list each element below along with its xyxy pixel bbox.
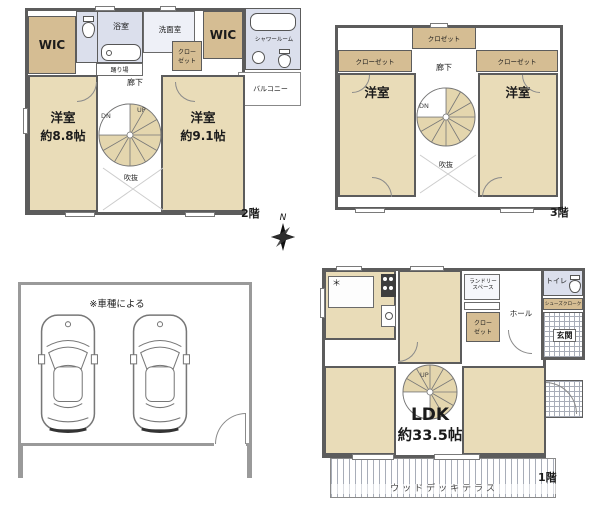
toilet-icon xyxy=(569,280,581,293)
shower-sink-icon xyxy=(252,51,265,64)
garage-plan: ※車種による xyxy=(18,282,262,487)
sliding-door-mark xyxy=(434,454,480,460)
bedroom-right-label: 洋室 約9.1帖 xyxy=(161,108,245,145)
window-mark xyxy=(410,266,444,271)
floor1-closet-label-1: クロー xyxy=(474,320,492,327)
window-mark xyxy=(95,6,115,11)
floor3-closet-left: クローゼット xyxy=(338,50,412,72)
closet-top-label: クロゼット xyxy=(428,33,461,43)
floor1-kitchen: ＊ xyxy=(324,270,396,340)
floor-plan-canvas: WIC 浴室 洗面室 踊り場 クロー ゼット WIC シャワールーム xyxy=(0,0,600,520)
floor1-shoe-closet: シューズクローク xyxy=(543,298,583,310)
floor3-hallway-label: 廊下 xyxy=(424,63,464,72)
ldk-label: LDK 約33.5帖 xyxy=(370,406,490,444)
bedroom-right-name: 洋室 xyxy=(190,110,215,125)
ldk-name: LDK xyxy=(411,405,449,425)
floor3-bedroom-left-name: 洋室 xyxy=(364,85,389,100)
floor2-plan: WIC 浴室 洗面室 踊り場 クロー ゼット WIC シャワールーム xyxy=(25,8,303,222)
shower-bathtub-icon xyxy=(250,13,296,31)
floor1-up-label: UP xyxy=(420,372,429,379)
window-mark xyxy=(65,212,95,217)
floor3-closet-right: クローゼット xyxy=(476,50,558,72)
floor2-wic-left: WIC xyxy=(28,16,76,74)
window-mark xyxy=(320,288,325,318)
wic-right-label: WIC xyxy=(210,28,237,42)
floor2-balcony: バルコニー xyxy=(238,72,301,106)
floor2-dn-label: DN xyxy=(101,113,111,120)
floor1-hall-label: ホール xyxy=(502,310,540,319)
bedroom-left-area: 約8.8帖 xyxy=(40,129,85,143)
window-mark xyxy=(355,208,385,213)
closet-left-label: クローゼット xyxy=(356,56,395,66)
floor3-dn-label: DN xyxy=(419,103,429,110)
floor1-closet: クロー ゼット xyxy=(466,312,500,342)
toilet-icon xyxy=(82,22,95,38)
floor2-up-label: UP xyxy=(137,107,146,114)
floor1-entrance: 玄関 xyxy=(543,312,583,358)
floor2-label: 2階 xyxy=(241,208,260,221)
closet-label-2: ゼット xyxy=(178,58,196,65)
floor3-label: 3階 xyxy=(550,207,569,220)
car-icon xyxy=(39,310,97,434)
floor1-shelf xyxy=(464,302,500,310)
window-mark xyxy=(160,6,176,11)
window-mark xyxy=(500,208,534,213)
window-mark xyxy=(185,212,215,217)
floor1-wood-deck: ウッドデッキテラス xyxy=(330,458,556,498)
floor2-closet: クロー ゼット xyxy=(172,41,202,71)
floor2-wic-right: WIC xyxy=(203,11,243,59)
bathtub-icon xyxy=(101,44,141,61)
garage-door-leaf xyxy=(245,413,246,444)
bathtub-drain-icon xyxy=(106,50,112,56)
floor3-void-label: 吹抜 xyxy=(426,161,466,169)
floor2-shower-room: シャワールーム xyxy=(245,8,301,70)
floor3-plan: クロゼット クローゼット クローゼット 廊下 洋室 洋室 DN 吹抜 3階 xyxy=(330,25,590,220)
kitchen-pantry: ＊ xyxy=(328,276,374,308)
sliding-door-mark xyxy=(352,454,394,460)
hallway-label: 廊下 xyxy=(113,78,157,87)
closet-right-label: クローゼット xyxy=(498,56,537,66)
floor3-bedroom-left-label: 洋室 xyxy=(338,83,416,101)
laundry-label-2: スペース xyxy=(472,285,493,291)
kitchen-sink-icon xyxy=(381,305,396,327)
wood-deck-label: ウッドデッキテラス xyxy=(331,484,557,494)
floor1-toilet-room: トイレ xyxy=(543,270,583,296)
car-icon xyxy=(131,310,189,434)
compass-north-label: N xyxy=(280,213,287,223)
floor1-toilet-label: トイレ xyxy=(546,277,567,285)
wic-left-label: WIC xyxy=(39,38,66,52)
floor3-spiral-staircase xyxy=(416,87,476,147)
floor3-bedroom-right-label: 洋室 xyxy=(478,83,558,101)
window-mark xyxy=(23,108,28,134)
closet-label-1: クロー xyxy=(178,49,196,56)
bedroom-right-area: 約9.1帖 xyxy=(180,129,225,143)
floor2-void-label: 吹抜 xyxy=(111,174,151,182)
window-mark xyxy=(336,266,362,271)
floor1-plan: ＊ ランドリー スペース クロー ゼット ホール トイレ xyxy=(322,268,590,518)
shower-toilet-icon xyxy=(278,54,291,68)
compass: N xyxy=(266,210,300,254)
stove-icon xyxy=(381,274,396,297)
garage-wall-leg xyxy=(247,446,252,478)
garage-wall-leg xyxy=(18,446,23,478)
landing-label: 踊り場 xyxy=(110,65,128,74)
bathroom-label: 浴室 xyxy=(98,22,144,31)
floor1-laundry-space: ランドリー スペース xyxy=(464,274,500,300)
floor1-label: 1階 xyxy=(538,472,557,485)
entrance-label: 玄関 xyxy=(557,330,573,341)
shoe-closet-label: シューズクローク xyxy=(545,301,582,307)
floor2-bathroom: 浴室 xyxy=(97,11,143,63)
bedroom-left-label: 洋室 約8.8帖 xyxy=(28,108,98,145)
balcony-label: バルコニー xyxy=(239,85,302,93)
floor3-closet-top: クロゼット xyxy=(412,27,476,49)
shower-room-label: シャワールーム xyxy=(246,37,302,43)
window-mark xyxy=(430,23,448,28)
washroom-label: 洗面室 xyxy=(144,26,196,35)
floor1-closet-label-2: ゼット xyxy=(474,329,492,336)
pantry-mark: ＊ xyxy=(332,279,341,289)
bedroom-left-name: 洋室 xyxy=(50,110,75,125)
floor2-landing: 踊り場 xyxy=(96,63,143,76)
ldk-area: 約33.5帖 xyxy=(398,428,463,444)
entrance-label-chip: 玄関 xyxy=(553,329,576,342)
